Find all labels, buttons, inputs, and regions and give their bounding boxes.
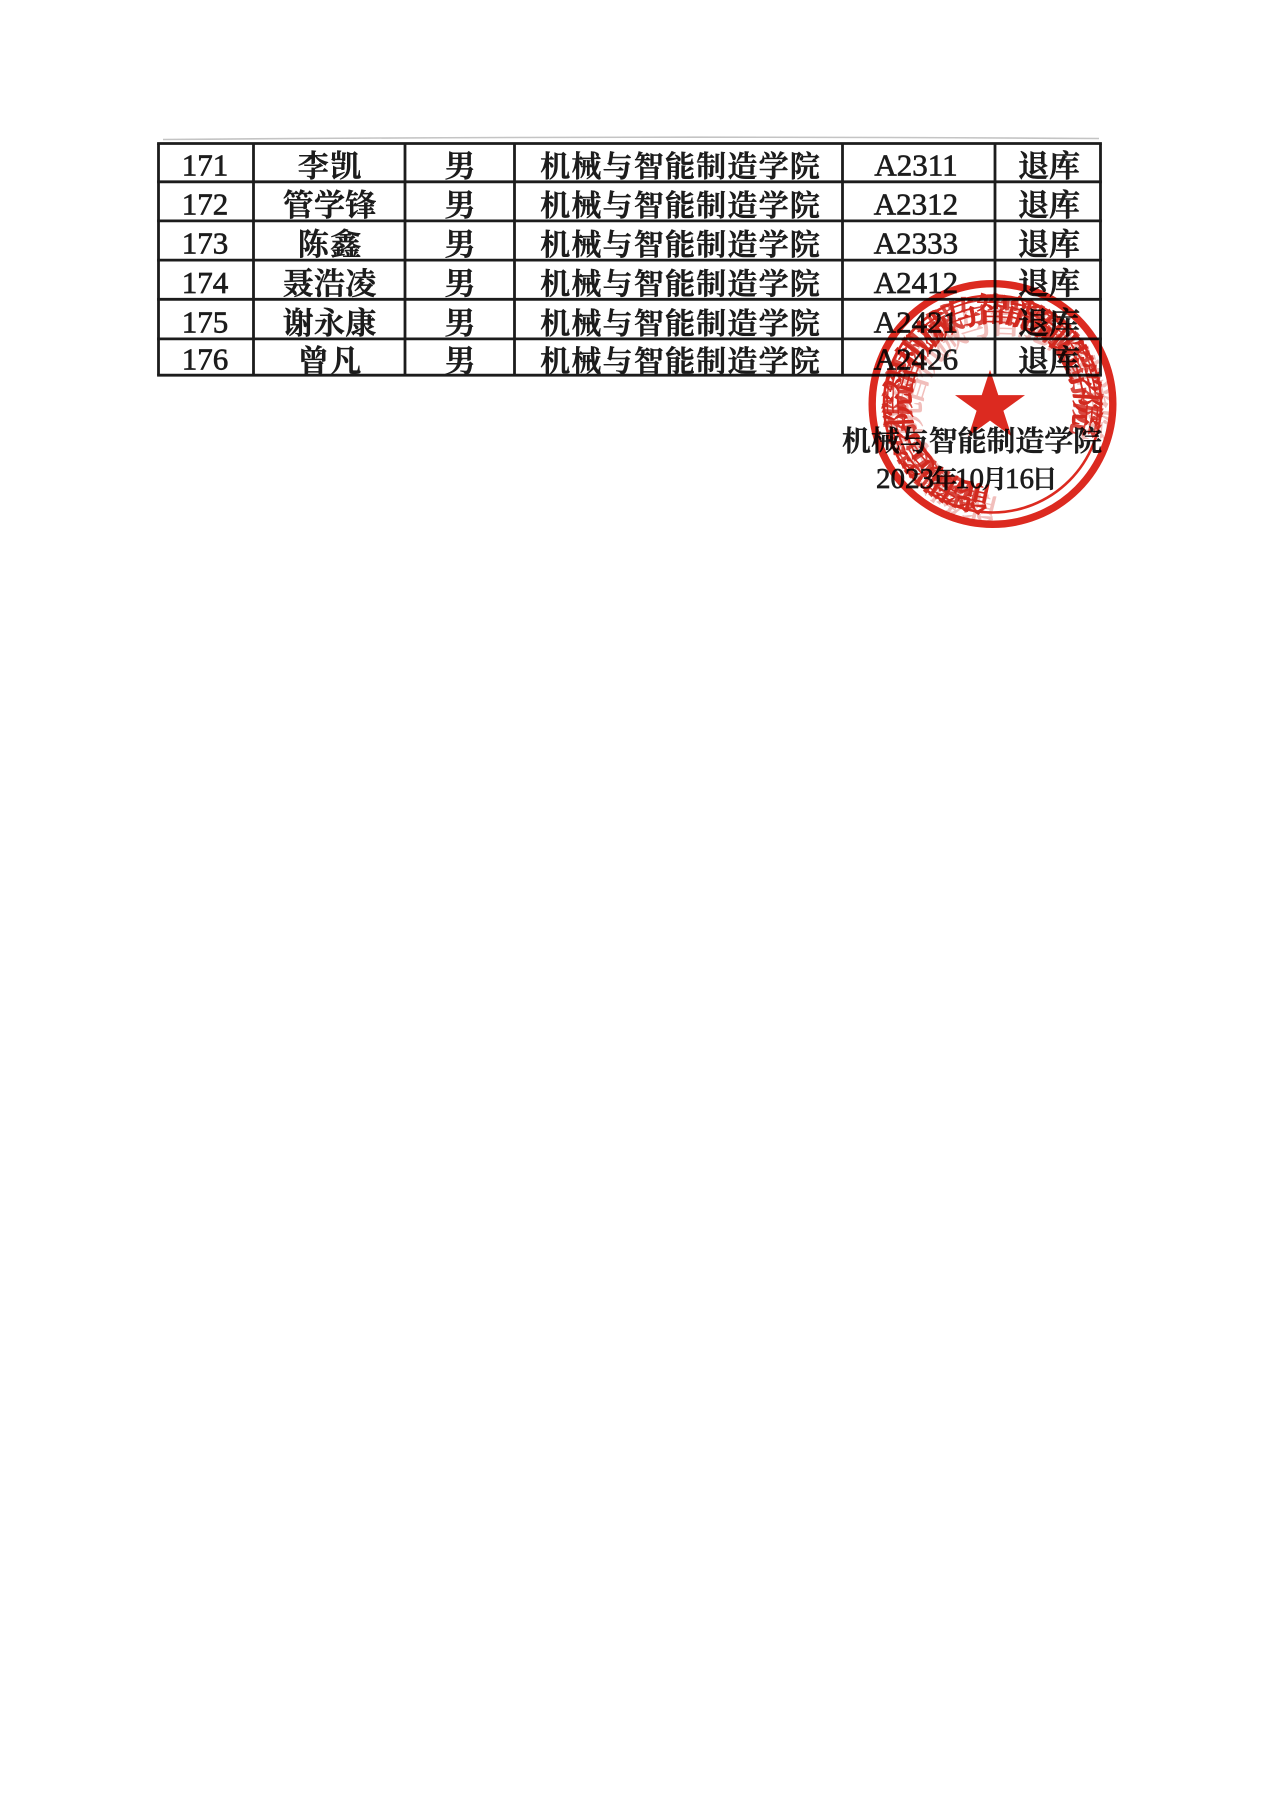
svg-text:A2312: A2312: [874, 186, 958, 221]
svg-text:16: 16: [1005, 463, 1034, 495]
svg-text:174: 174: [182, 265, 229, 300]
svg-text:172: 172: [182, 186, 229, 221]
svg-text:171: 171: [182, 147, 229, 182]
svg-text:175: 175: [182, 304, 229, 339]
svg-text:A2311: A2311: [874, 147, 957, 182]
svg-text:176: 176: [182, 342, 229, 377]
svg-text:A2333: A2333: [874, 226, 958, 261]
svg-text:173: 173: [182, 226, 229, 261]
